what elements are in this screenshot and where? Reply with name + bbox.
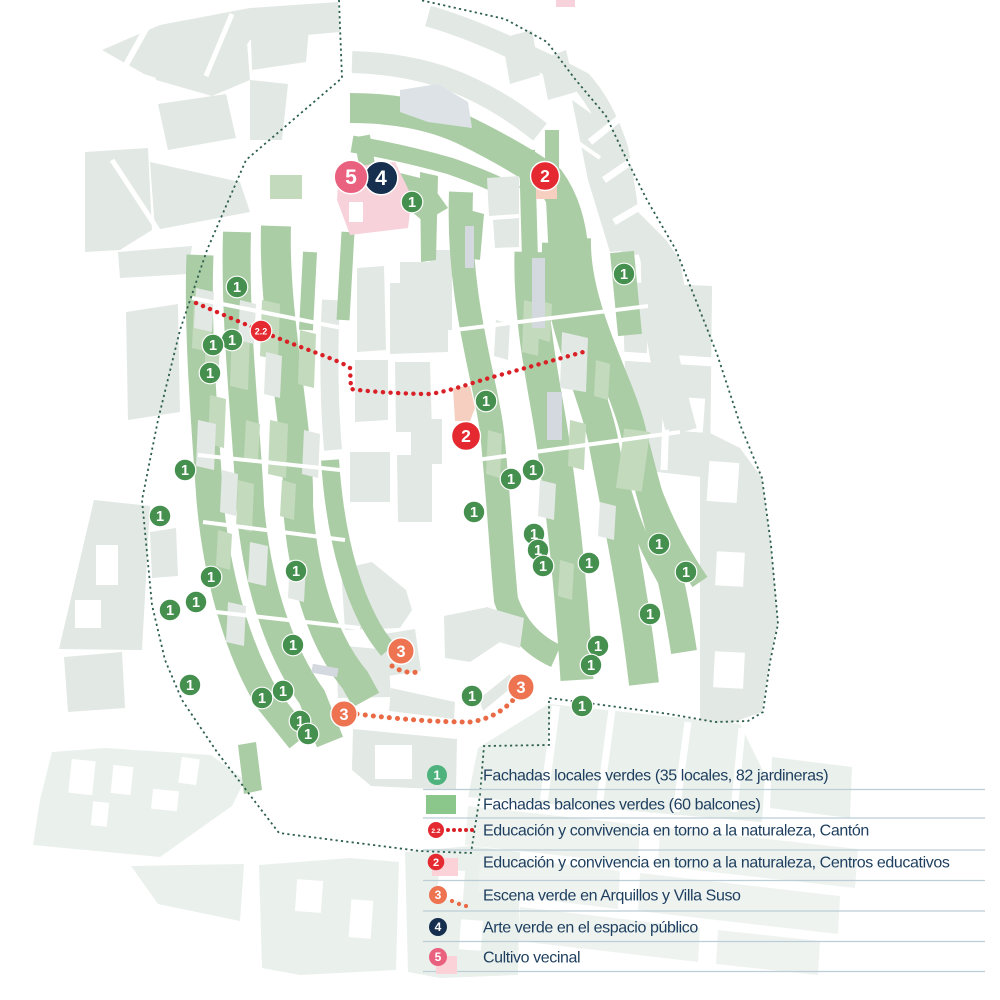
svg-text:3: 3	[339, 706, 348, 724]
svg-text:1: 1	[470, 505, 478, 521]
svg-text:1: 1	[468, 689, 476, 705]
svg-text:1: 1	[682, 565, 690, 581]
svg-text:1: 1	[233, 280, 241, 296]
svg-text:1: 1	[655, 537, 663, 553]
svg-text:3: 3	[435, 888, 442, 902]
svg-text:1: 1	[304, 727, 312, 743]
svg-text:2.2: 2.2	[431, 828, 440, 835]
svg-text:1: 1	[289, 638, 297, 654]
svg-text:Educación y convivencia en tor: Educación y convivencia en torno a la na…	[483, 855, 950, 872]
svg-text:1: 1	[228, 333, 236, 349]
svg-text:1: 1	[646, 607, 654, 623]
svg-text:Fachadas balcones verdes (60 b: Fachadas balcones verdes (60 balcones)	[483, 797, 760, 814]
svg-text:2: 2	[461, 426, 471, 446]
svg-text:Cultivo vecinal: Cultivo vecinal	[483, 950, 580, 967]
svg-text:Escena verde en Arquillos y Vi: Escena verde en Arquillos y Villa Suso	[483, 888, 741, 905]
svg-text:1: 1	[433, 768, 440, 783]
svg-text:1: 1	[207, 570, 215, 586]
svg-text:1: 1	[408, 195, 416, 211]
svg-text:2: 2	[433, 857, 439, 869]
svg-text:4: 4	[375, 167, 387, 190]
svg-text:1: 1	[166, 603, 174, 619]
svg-text:Fachadas locales verdes (35 lo: Fachadas locales verdes (35 locales, 82 …	[483, 768, 828, 785]
svg-text:1: 1	[578, 699, 586, 715]
svg-text:2: 2	[540, 166, 550, 186]
svg-text:1: 1	[539, 559, 547, 575]
svg-text:2.2: 2.2	[255, 326, 268, 336]
svg-text:1: 1	[482, 394, 490, 410]
svg-text:1: 1	[587, 658, 595, 674]
svg-text:1: 1	[620, 267, 628, 283]
svg-text:1: 1	[186, 678, 194, 694]
svg-text:5: 5	[435, 950, 442, 964]
svg-text:4: 4	[435, 920, 442, 934]
svg-text:1: 1	[192, 595, 200, 611]
svg-text:3: 3	[516, 679, 525, 697]
svg-text:1: 1	[529, 463, 537, 479]
svg-text:1: 1	[258, 691, 266, 707]
svg-text:1: 1	[279, 684, 287, 700]
svg-text:Arte verde en el espacio públi: Arte verde en el espacio público	[483, 920, 698, 937]
svg-text:1: 1	[181, 463, 189, 479]
svg-text:Educación y convivencia en tor: Educación y convivencia en torno a la na…	[483, 823, 869, 840]
svg-text:1: 1	[156, 509, 164, 525]
svg-text:1: 1	[206, 366, 214, 382]
svg-text:5: 5	[345, 166, 357, 189]
svg-text:1: 1	[209, 338, 217, 354]
svg-text:1: 1	[585, 556, 593, 572]
svg-text:1: 1	[594, 639, 602, 655]
svg-text:3: 3	[396, 643, 405, 661]
svg-text:1: 1	[292, 564, 300, 580]
svg-text:1: 1	[507, 472, 515, 488]
